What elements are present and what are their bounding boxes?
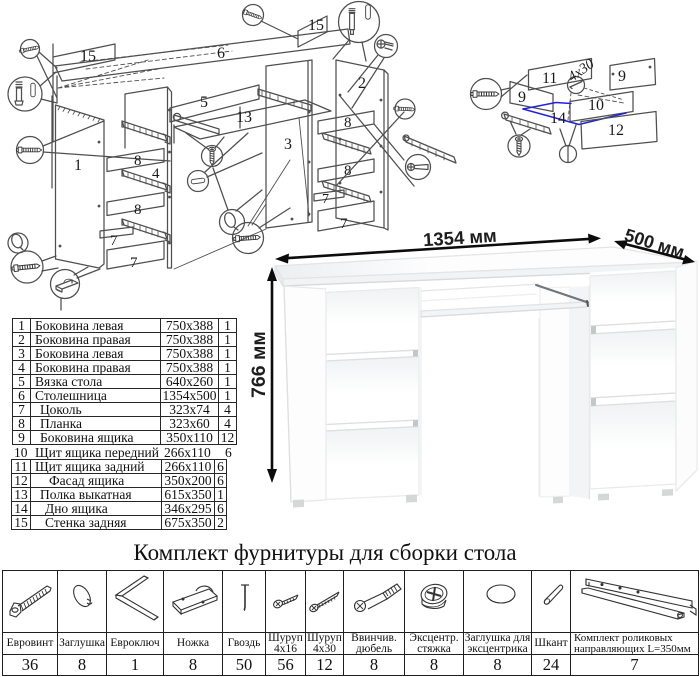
svg-text:9: 9 <box>618 68 626 85</box>
svg-text:7: 7 <box>322 192 329 207</box>
svg-text:7: 7 <box>340 216 348 232</box>
svg-text:8: 8 <box>134 153 142 169</box>
svg-text:9: 9 <box>518 89 526 106</box>
svg-text:766 мм: 766 мм <box>248 331 270 398</box>
svg-text:4: 4 <box>152 166 160 182</box>
svg-text:3: 3 <box>284 136 292 153</box>
svg-text:14: 14 <box>550 110 566 127</box>
svg-text:8: 8 <box>134 202 142 218</box>
svg-text:11: 11 <box>542 70 557 87</box>
svg-text:15: 15 <box>308 17 324 34</box>
svg-text:5: 5 <box>200 94 208 111</box>
svg-text:13: 13 <box>236 109 252 126</box>
svg-text:12: 12 <box>608 122 624 139</box>
svg-text:6: 6 <box>217 45 225 62</box>
svg-text:1: 1 <box>74 157 82 174</box>
svg-text:2: 2 <box>358 75 366 92</box>
svg-text:7: 7 <box>130 255 138 271</box>
svg-text:7: 7 <box>110 233 118 249</box>
svg-text:8: 8 <box>344 115 352 131</box>
